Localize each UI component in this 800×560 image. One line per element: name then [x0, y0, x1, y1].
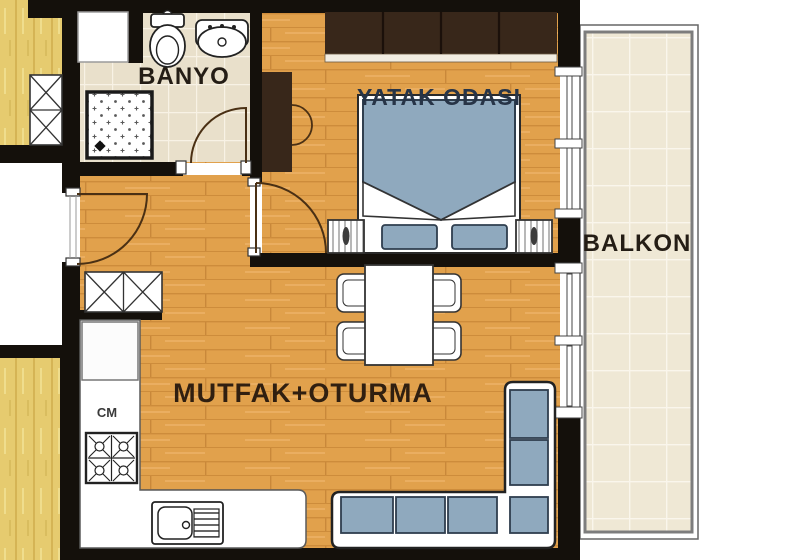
wall-stub-outside-1 — [0, 145, 65, 163]
sofa-cushion — [341, 497, 393, 533]
shower-tray-icon — [87, 92, 152, 158]
bathroom-utility-niche — [78, 12, 128, 62]
stove-icon — [86, 433, 137, 483]
sink-faucet — [183, 522, 190, 529]
wall-right-top — [558, 0, 580, 70]
sofa-cushion — [510, 390, 548, 438]
balcony-tiled-area — [585, 32, 692, 532]
wall-bathroom-bedroom — [250, 0, 262, 183]
sink-drainer — [194, 509, 219, 537]
wall-left-middle — [62, 262, 80, 346]
floor-plan-canvas: BALKON — [0, 0, 800, 560]
window-cap — [555, 139, 582, 148]
window-cap — [555, 67, 582, 76]
window-cap — [555, 407, 582, 418]
wall-bathroom-bottom — [80, 162, 183, 176]
wall-stub-bathroom-corner — [128, 0, 143, 63]
sofa-cushion — [510, 497, 548, 533]
sofa-cushion — [396, 497, 445, 533]
wall-stub-outside-top — [28, 0, 65, 18]
wall-bottom — [60, 548, 580, 560]
closet-icon — [262, 72, 292, 172]
wardrobe-icon — [325, 12, 557, 62]
balcony: BALKON — [580, 25, 698, 539]
refrigerator-icon — [82, 322, 138, 380]
pillow-right — [452, 225, 507, 249]
wall-stub-outside-2 — [0, 345, 65, 358]
floor-plan-svg: BALKON — [0, 0, 800, 560]
pillow-left — [382, 225, 437, 249]
window-cap — [555, 263, 582, 273]
sofa-cushion — [510, 440, 548, 485]
door-opening — [183, 163, 242, 175]
window-cap — [555, 336, 582, 345]
washbasin-icon — [196, 20, 248, 57]
balcony-label: BALKON — [583, 230, 692, 257]
double-bed-icon — [358, 95, 520, 253]
bedroom-window-2 — [567, 148, 572, 209]
corridor-cabinet-icon — [30, 75, 62, 145]
living-window-2 — [567, 346, 572, 406]
kitchen-sink-icon — [152, 502, 223, 544]
living-window-1 — [567, 274, 572, 336]
nightstand-right-icon — [516, 220, 552, 253]
bedroom-window-1 — [567, 76, 572, 139]
washing-machine-label: CM — [97, 405, 117, 420]
wall-left-lower — [60, 346, 80, 556]
living-kitchen-label: MUTFAK+OTURMA — [173, 378, 433, 408]
side-corridor-floor-bottom — [0, 358, 60, 560]
wall-right-bottom — [558, 418, 580, 550]
entrance-opening — [62, 193, 80, 262]
shoe-cabinet-icon — [85, 272, 162, 312]
bathroom-label: BANYO — [138, 63, 230, 90]
dining-table-icon — [365, 265, 433, 365]
window-cap — [555, 209, 582, 218]
bedroom-label: YATAK ODASI — [357, 84, 521, 110]
nightstand-left-icon — [328, 220, 364, 253]
toilet-icon — [150, 11, 185, 68]
sofa-cushion — [448, 497, 497, 533]
